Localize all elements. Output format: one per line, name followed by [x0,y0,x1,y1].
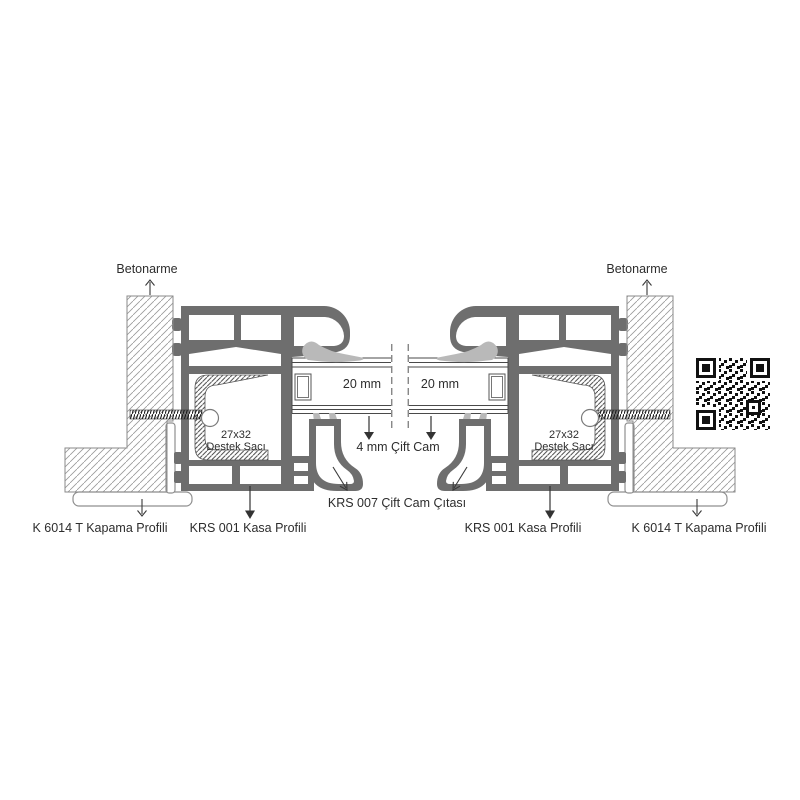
label-support-right-2: Destek Sacı [534,441,593,453]
label-closing-left: K 6014 T Kapama Profili [32,521,167,535]
label-bead: KRS 007 Çift Cam Çıtası [328,496,466,510]
label-frame-right: KRS 001 Kasa Profili [465,521,582,535]
label-glass-gap-right: 20 mm [421,377,459,391]
label-support-left-2: Destek Sacı [206,441,265,453]
label-betonarme-right: Betonarme [606,262,667,276]
label-closing-right: K 6014 T Kapama Profili [631,521,766,535]
betonarme-arrow-left [146,280,155,295]
technical-drawing-page: Betonarme Betonarme 20 mm 20 mm 4 mm Çif… [0,0,800,800]
label-support-right-1: 27x32 [549,429,579,441]
label-glass-gap-left: 20 mm [343,377,381,391]
label-frame-left: KRS 001 Kasa Profili [190,521,307,535]
label-betonarme-left: Betonarme [116,262,177,276]
label-glazing: 4 mm Çift Cam [356,440,439,454]
label-support-left-1: 27x32 [221,429,251,441]
betonarme-arrow-right [643,280,652,295]
glazing-bead-shape [309,419,363,491]
glazing-arrow-right [426,416,436,440]
concrete-left [65,296,173,492]
glazing-arrow-left [364,416,374,440]
window-section-diagram: Betonarme Betonarme 20 mm 20 mm 4 mm Çif… [0,0,800,800]
qr-code [693,355,773,433]
